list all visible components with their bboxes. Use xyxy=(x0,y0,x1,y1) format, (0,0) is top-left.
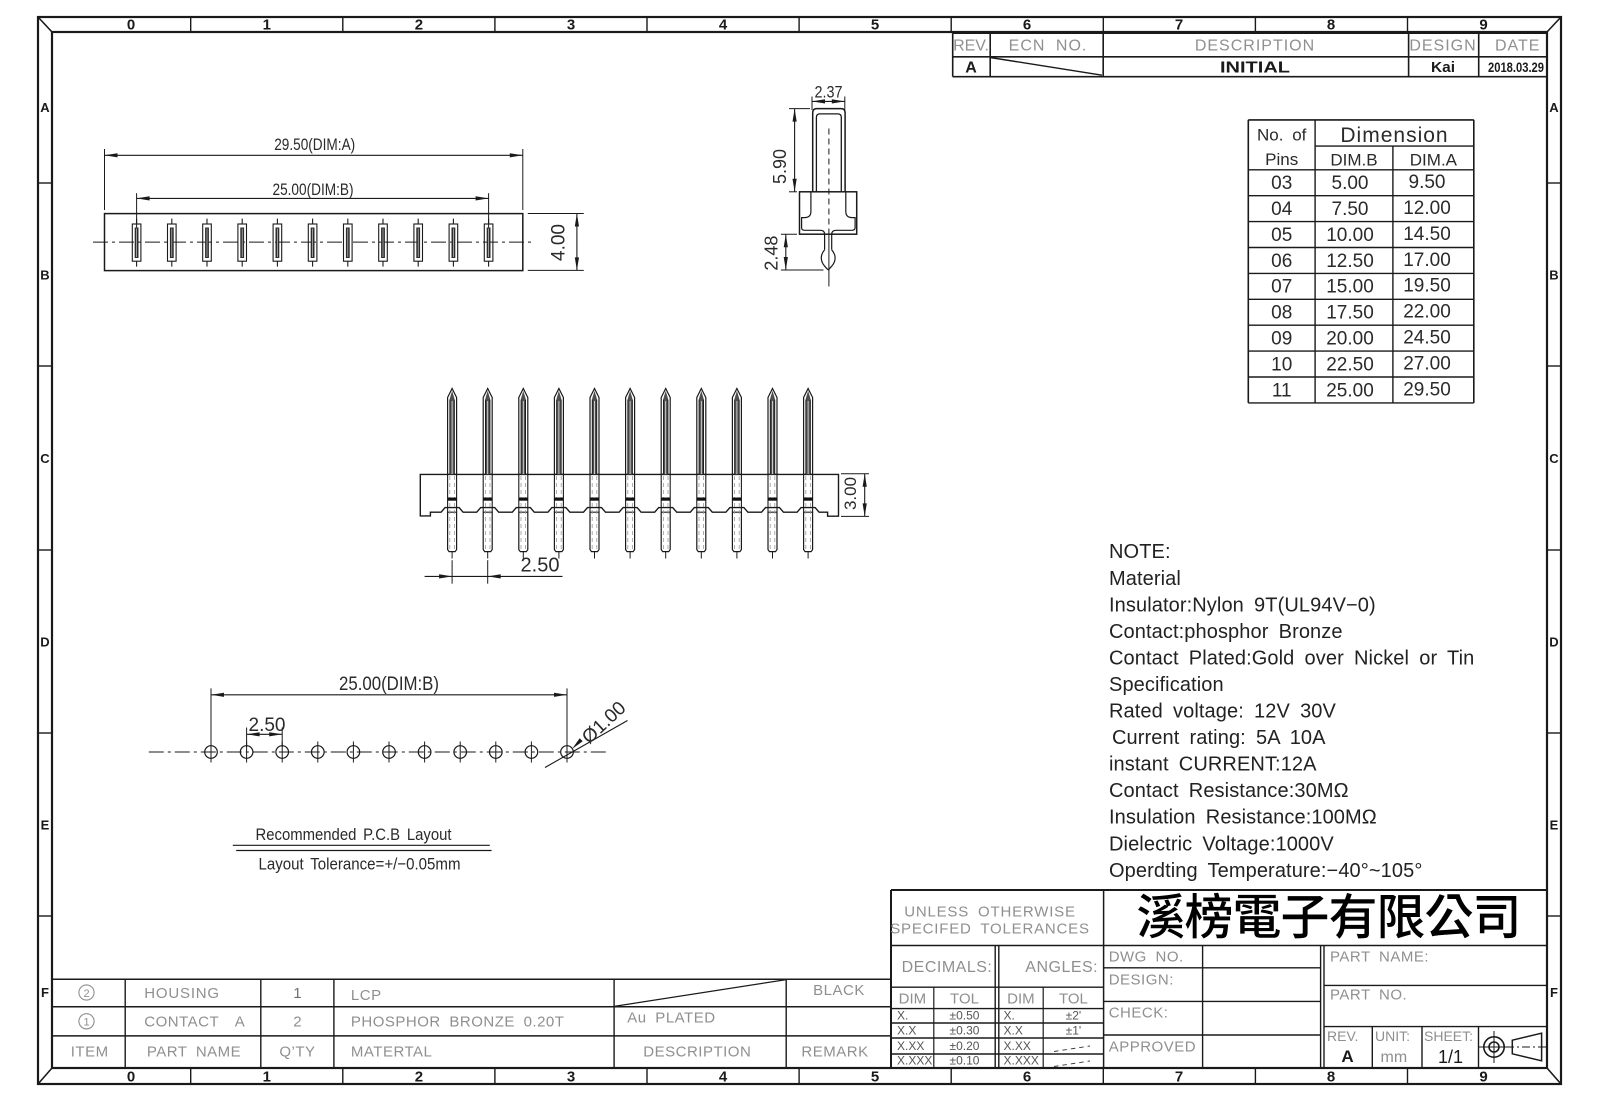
svg-text:A: A xyxy=(1549,100,1559,115)
svg-text:APPROVED: APPROVED xyxy=(1109,1039,1196,1056)
svg-text:03: 03 xyxy=(1271,173,1292,194)
svg-text:7: 7 xyxy=(1175,17,1183,34)
svg-text:12.00: 12.00 xyxy=(1403,198,1451,219)
svg-text:mm: mm xyxy=(1381,1049,1408,1066)
svg-text:MATERTAL: MATERTAL xyxy=(351,1044,433,1061)
svg-text:Contact:phosphor Bronze: Contact:phosphor Bronze xyxy=(1109,621,1343,643)
svg-text:29.50(DIM:A): 29.50(DIM:A) xyxy=(274,135,355,154)
svg-text:SHEET:: SHEET: xyxy=(1424,1028,1473,1044)
svg-text:05: 05 xyxy=(1271,225,1292,246)
svg-text:17.00: 17.00 xyxy=(1403,250,1451,271)
svg-text:29.50: 29.50 xyxy=(1403,379,1451,400)
svg-text:07: 07 xyxy=(1271,277,1292,298)
svg-text:ANGLES:: ANGLES: xyxy=(1025,959,1098,976)
svg-text:INITIAL: INITIAL xyxy=(1220,60,1290,77)
svg-text:SPECIFED TOLERANCES: SPECIFED TOLERANCES xyxy=(890,921,1090,938)
svg-text:2: 2 xyxy=(415,1069,423,1086)
svg-text:2: 2 xyxy=(83,988,89,1000)
svg-text:12.50: 12.50 xyxy=(1326,251,1374,272)
svg-text:DWG NO.: DWG NO. xyxy=(1109,949,1184,966)
svg-text:6: 6 xyxy=(1023,1069,1031,1086)
svg-text:Recommended P.C.B Layout: Recommended P.C.B Layout xyxy=(256,825,452,844)
svg-text:0: 0 xyxy=(127,17,135,34)
svg-text:6: 6 xyxy=(1023,17,1031,34)
svg-text:24.50: 24.50 xyxy=(1403,328,1451,349)
svg-text:1: 1 xyxy=(263,17,271,34)
svg-text:CHECK:: CHECK: xyxy=(1109,1005,1169,1022)
svg-text:DIM: DIM xyxy=(899,991,927,1008)
svg-text:1: 1 xyxy=(263,1069,271,1086)
svg-text:X.X: X.X xyxy=(1004,1024,1023,1038)
svg-text:09: 09 xyxy=(1271,329,1292,350)
svg-text:Insulator:Nylon 9T(UL94V−0): Insulator:Nylon 9T(UL94V−0) xyxy=(1109,594,1376,616)
svg-text:3: 3 xyxy=(567,17,575,34)
svg-text:DIM.A: DIM.A xyxy=(1410,151,1458,170)
svg-text:X.XX: X.XX xyxy=(1004,1039,1031,1053)
svg-text:UNIT:: UNIT: xyxy=(1375,1028,1410,1044)
svg-text:X.: X. xyxy=(1004,1009,1015,1023)
svg-text:BLACK: BLACK xyxy=(813,982,865,999)
svg-text:Insulation Resistance:100MΩ: Insulation Resistance:100MΩ xyxy=(1109,807,1377,829)
svg-text:17.50: 17.50 xyxy=(1326,303,1374,324)
svg-text:Contact Plated:Gold over Nicke: Contact Plated:Gold over Nickel or Tin xyxy=(1109,647,1474,669)
svg-text:4: 4 xyxy=(719,17,728,34)
svg-text:9: 9 xyxy=(1479,17,1487,34)
svg-text:Contact Resistance:30MΩ: Contact Resistance:30MΩ xyxy=(1109,780,1349,802)
svg-text:±0.10: ±0.10 xyxy=(950,1054,980,1068)
svg-text:08: 08 xyxy=(1271,303,1292,324)
svg-text:D: D xyxy=(40,635,49,650)
svg-text:2: 2 xyxy=(415,17,423,34)
svg-text:A: A xyxy=(1341,1047,1353,1066)
svg-text:±1': ±1' xyxy=(1066,1024,1082,1038)
svg-text:15.00: 15.00 xyxy=(1326,277,1374,298)
svg-text:7: 7 xyxy=(1175,1069,1183,1086)
svg-text:9: 9 xyxy=(1479,1069,1487,1086)
svg-text:5.00: 5.00 xyxy=(1332,173,1369,194)
svg-text:2.50: 2.50 xyxy=(521,555,560,577)
svg-text:C: C xyxy=(40,451,50,466)
svg-text:Material: Material xyxy=(1109,568,1181,590)
svg-text:±0.20: ±0.20 xyxy=(950,1039,980,1053)
svg-text:DESIGN:: DESIGN: xyxy=(1109,972,1174,989)
svg-text:9.50: 9.50 xyxy=(1409,172,1446,193)
svg-text:PART NO.: PART NO. xyxy=(1330,987,1407,1004)
svg-text:LCP: LCP xyxy=(351,987,382,1004)
svg-text:Dimension: Dimension xyxy=(1340,124,1448,147)
svg-text:DIM: DIM xyxy=(1007,991,1035,1008)
svg-text:06: 06 xyxy=(1271,251,1292,272)
svg-text:Specification: Specification xyxy=(1109,674,1224,696)
svg-text:8: 8 xyxy=(1327,1069,1335,1086)
svg-text:±2': ±2' xyxy=(1066,1009,1082,1023)
svg-text:A: A xyxy=(965,60,977,77)
svg-text:1: 1 xyxy=(293,985,301,1002)
svg-text:HOUSING: HOUSING xyxy=(144,985,220,1002)
svg-text:5: 5 xyxy=(871,17,879,34)
svg-text:5: 5 xyxy=(871,1069,879,1086)
svg-text:X.X: X.X xyxy=(897,1024,916,1038)
svg-text:Pins: Pins xyxy=(1265,150,1298,169)
svg-text:C: C xyxy=(1549,451,1559,466)
svg-text:Current rating: 5A 10A: Current rating: 5A 10A xyxy=(1112,727,1326,749)
svg-text:REV.: REV. xyxy=(1327,1028,1358,1044)
svg-text:NOTE:: NOTE: xyxy=(1109,541,1171,563)
svg-text:Q’TY: Q’TY xyxy=(279,1044,315,1061)
svg-text:20.00: 20.00 xyxy=(1326,329,1374,350)
svg-text:X.XX: X.XX xyxy=(897,1039,924,1053)
svg-text:2.37: 2.37 xyxy=(815,83,843,102)
svg-text:F: F xyxy=(1550,985,1558,1000)
svg-text:B: B xyxy=(1549,268,1558,283)
svg-text:5.90: 5.90 xyxy=(770,149,790,184)
svg-text:1/1: 1/1 xyxy=(1438,1047,1463,1067)
svg-text:E: E xyxy=(1550,818,1559,833)
svg-text:ECN NO.: ECN NO. xyxy=(1009,38,1088,55)
svg-text:22.00: 22.00 xyxy=(1403,302,1451,323)
svg-text:TOL: TOL xyxy=(950,991,979,1008)
svg-text:4: 4 xyxy=(719,1069,728,1086)
svg-text:27.00: 27.00 xyxy=(1403,353,1451,374)
svg-text:DESIGN: DESIGN xyxy=(1409,38,1476,55)
svg-text:22.50: 22.50 xyxy=(1326,354,1374,375)
svg-text:Layout Tolerance=+/−0.05mm: Layout Tolerance=+/−0.05mm xyxy=(259,854,461,873)
svg-text:8: 8 xyxy=(1327,17,1335,34)
svg-text:Dielectric Voltage:1000V: Dielectric Voltage:1000V xyxy=(1109,833,1334,855)
svg-text:Kai: Kai xyxy=(1431,59,1455,76)
svg-text:ITEM: ITEM xyxy=(71,1044,109,1061)
svg-text:X.XXX: X.XXX xyxy=(897,1054,932,1068)
svg-text:±0.50: ±0.50 xyxy=(950,1009,980,1023)
svg-text:2.48: 2.48 xyxy=(762,236,782,271)
svg-text:REV.: REV. xyxy=(953,38,989,55)
svg-text:PHOSPHOR BRONZE 0.20T: PHOSPHOR BRONZE 0.20T xyxy=(351,1014,565,1031)
svg-text:Au PLATED: Au PLATED xyxy=(627,1010,715,1027)
svg-text:B: B xyxy=(40,268,49,283)
svg-text:1: 1 xyxy=(83,1017,89,1029)
svg-text:±0.30: ±0.30 xyxy=(950,1024,980,1038)
svg-text:Rated voltage: 12V 30V: Rated voltage: 12V 30V xyxy=(1109,701,1337,723)
svg-text:19.50: 19.50 xyxy=(1403,276,1451,297)
svg-text:DESCRIPTION: DESCRIPTION xyxy=(643,1044,751,1061)
svg-text:25.00(DIM:B): 25.00(DIM:B) xyxy=(339,674,439,695)
svg-text:instant CURRENT:12A: instant CURRENT:12A xyxy=(1109,754,1317,776)
svg-text:10.00: 10.00 xyxy=(1326,225,1374,246)
svg-text:2: 2 xyxy=(293,1014,301,1031)
svg-text:Operdting Temperature:−40°~105: Operdting Temperature:−40°~105° xyxy=(1109,860,1422,882)
svg-text:DESCRIPTION: DESCRIPTION xyxy=(1195,38,1315,55)
svg-text:25.00: 25.00 xyxy=(1326,380,1374,401)
svg-text:2018.03.29: 2018.03.29 xyxy=(1488,59,1544,75)
svg-text:DIM.B: DIM.B xyxy=(1330,151,1377,170)
svg-text:11: 11 xyxy=(1272,380,1292,401)
svg-text:3.00: 3.00 xyxy=(841,477,860,510)
svg-text:10: 10 xyxy=(1271,354,1292,375)
svg-text:TOL: TOL xyxy=(1059,991,1088,1008)
svg-text:UNLESS OTHERWISE: UNLESS OTHERWISE xyxy=(904,904,1076,921)
svg-text:E: E xyxy=(41,818,50,833)
svg-text:DATE: DATE xyxy=(1495,38,1540,55)
svg-text:A: A xyxy=(40,100,50,115)
svg-text:F: F xyxy=(41,985,49,1000)
svg-text:2.50: 2.50 xyxy=(249,715,286,736)
svg-text:DECIMALS:: DECIMALS: xyxy=(902,959,993,976)
svg-text:PART NAME: PART NAME xyxy=(147,1044,241,1061)
svg-text:25.00(DIM:B): 25.00(DIM:B) xyxy=(273,180,354,199)
svg-text:7.50: 7.50 xyxy=(1332,199,1369,220)
svg-text:No. of: No. of xyxy=(1257,126,1307,145)
svg-text:0: 0 xyxy=(127,1069,135,1086)
svg-text:4.00: 4.00 xyxy=(549,224,570,261)
svg-text:CONTACT A: CONTACT A xyxy=(144,1014,245,1031)
svg-text:04: 04 xyxy=(1271,199,1293,220)
svg-text:X.: X. xyxy=(897,1009,908,1023)
svg-text:PART NAME:: PART NAME: xyxy=(1330,949,1429,966)
svg-text:3: 3 xyxy=(567,1069,575,1086)
svg-text:D: D xyxy=(1549,635,1558,650)
svg-text:14.50: 14.50 xyxy=(1403,224,1451,245)
svg-text:REMARK: REMARK xyxy=(801,1044,868,1061)
svg-text:X.XXX: X.XXX xyxy=(1004,1054,1039,1068)
